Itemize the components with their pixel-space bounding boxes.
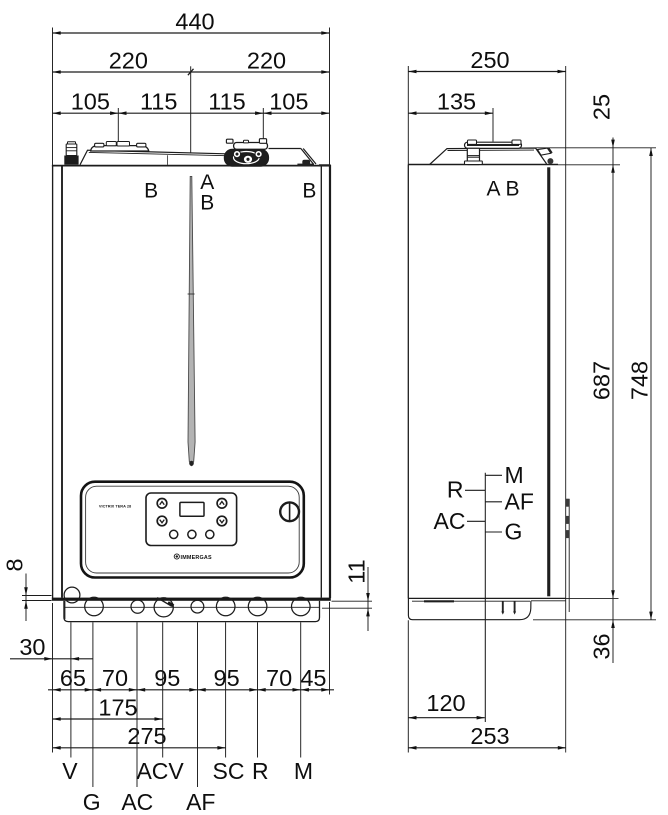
svg-text:AC: AC	[121, 789, 153, 815]
svg-text:B: B	[200, 192, 214, 215]
svg-text:275: 275	[127, 723, 166, 749]
svg-text:105: 105	[71, 89, 110, 115]
svg-text:R: R	[447, 476, 464, 502]
svg-text:220: 220	[109, 47, 148, 73]
svg-text:135: 135	[437, 89, 476, 115]
svg-text:748: 748	[626, 361, 652, 400]
svg-text:175: 175	[98, 694, 137, 720]
svg-text:8: 8	[1, 558, 27, 571]
svg-text:70: 70	[102, 665, 128, 691]
svg-text:687: 687	[588, 361, 614, 400]
svg-text:M: M	[294, 758, 313, 784]
svg-text:115: 115	[140, 89, 177, 115]
svg-text:36: 36	[588, 633, 614, 659]
svg-text:AF: AF	[186, 789, 215, 815]
svg-text:VICTRIX TERA 28: VICTRIX TERA 28	[99, 504, 132, 509]
svg-text:SC: SC	[213, 758, 245, 784]
svg-text:250: 250	[470, 47, 509, 73]
svg-text:V: V	[62, 758, 78, 784]
svg-text:253: 253	[470, 723, 509, 749]
svg-text:65: 65	[60, 665, 86, 691]
svg-text:AF: AF	[505, 488, 534, 514]
svg-text:45: 45	[300, 665, 326, 691]
svg-text:220: 220	[247, 47, 286, 73]
svg-text:440: 440	[175, 8, 214, 34]
svg-text:11: 11	[343, 559, 369, 583]
svg-text:ACV: ACV	[136, 758, 184, 784]
svg-text:B: B	[144, 180, 158, 203]
svg-text:115: 115	[208, 89, 245, 115]
svg-text:AC: AC	[434, 508, 466, 534]
svg-text:R: R	[252, 758, 269, 784]
svg-text:B: B	[302, 180, 316, 203]
svg-text:120: 120	[426, 690, 465, 716]
svg-text:95: 95	[214, 665, 240, 691]
svg-text:105: 105	[269, 89, 308, 115]
svg-text:70: 70	[266, 665, 292, 691]
svg-text:95: 95	[154, 665, 180, 691]
svg-text:30: 30	[19, 634, 45, 660]
svg-text:B: B	[505, 178, 519, 201]
svg-text:IMMERGAS: IMMERGAS	[181, 555, 212, 561]
svg-text:G: G	[505, 519, 523, 545]
svg-text:G: G	[83, 789, 101, 815]
svg-text:25: 25	[588, 94, 614, 120]
svg-text:M: M	[505, 462, 524, 488]
svg-text:A: A	[486, 178, 500, 201]
